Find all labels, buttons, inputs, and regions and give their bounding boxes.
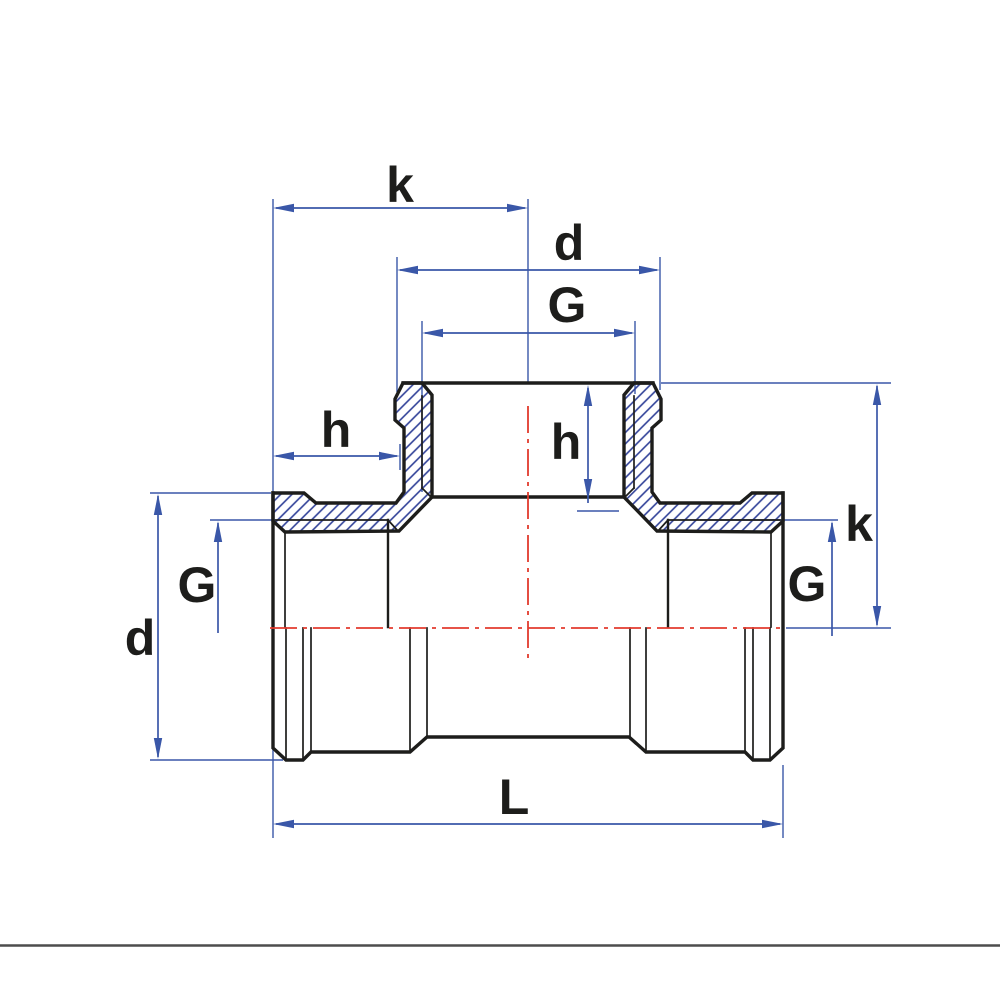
arrowhead-left <box>422 329 443 337</box>
arrowhead-up <box>873 384 881 405</box>
arrowhead-up <box>584 385 592 406</box>
dim-label-g-right: G <box>788 556 827 612</box>
dim-label-g-top: G <box>548 277 587 333</box>
dimension-d-left: d <box>125 494 162 759</box>
dim-label-l-bottom: L <box>499 769 530 825</box>
dimension-g-left: G <box>178 521 223 633</box>
arrowhead-right <box>762 820 783 828</box>
arrowhead-left <box>273 204 294 212</box>
arrowhead-up <box>154 494 162 515</box>
arrowhead-up <box>828 521 836 542</box>
drawing-canvas: k d G h h k G G <box>0 0 1000 1000</box>
section-hatch-left-wall <box>273 383 432 532</box>
arrowhead-left <box>273 452 294 460</box>
dimension-h-left: h <box>273 402 400 460</box>
dim-label-g-left: G <box>178 557 217 613</box>
arrowhead-right <box>507 204 528 212</box>
dim-label-h-branch: h <box>551 414 582 470</box>
dim-label-h-left: h <box>321 402 352 458</box>
dim-label-d-left: d <box>125 610 156 666</box>
arrowhead-right <box>639 266 660 274</box>
tee-fitting-technical-drawing: k d G h h k G G <box>0 0 1000 1000</box>
dim-label-d-top: d <box>554 215 585 271</box>
dim-label-k-top: k <box>386 157 414 213</box>
arrowhead-left <box>273 820 294 828</box>
dimension-l-bottom: L <box>273 769 783 828</box>
arrowhead-right <box>379 452 400 460</box>
arrowhead-up <box>214 521 222 542</box>
arrowhead-down <box>154 738 162 759</box>
arrowhead-down <box>873 606 881 627</box>
dim-label-k-right: k <box>845 496 873 552</box>
arrowhead-right <box>614 329 635 337</box>
arrowhead-left <box>397 266 418 274</box>
section-hatch-right-wall <box>624 383 783 532</box>
dimension-h-branch: h <box>551 385 592 503</box>
dimension-k-top: k <box>273 157 528 213</box>
dimension-g-right: G <box>788 521 837 636</box>
dimension-k-right: k <box>845 384 881 627</box>
